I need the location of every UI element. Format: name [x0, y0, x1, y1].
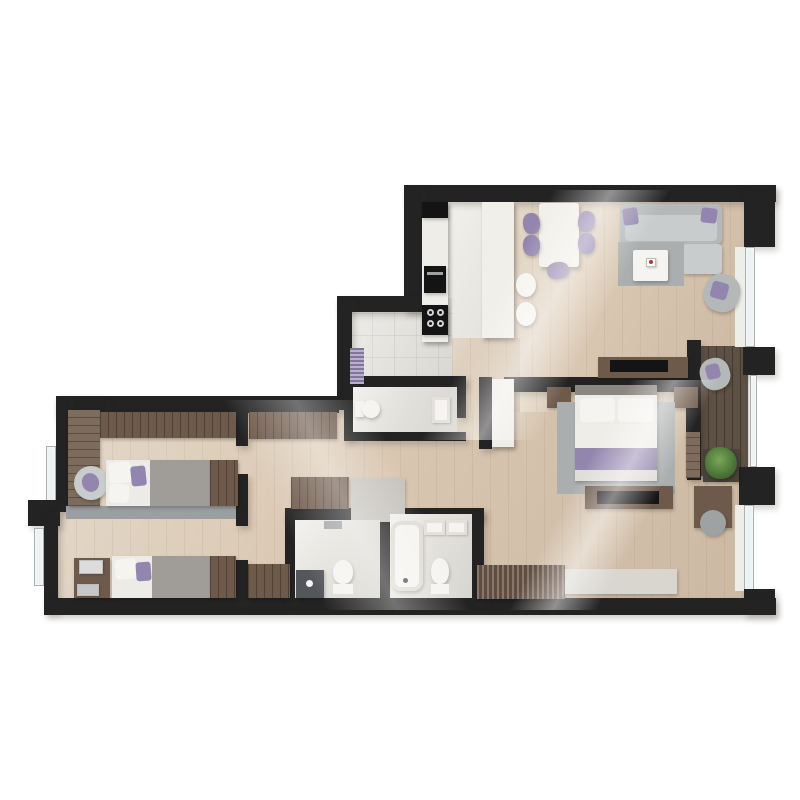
wall-bathrooms-middle: [380, 514, 390, 602]
wall-left-upper-block: [404, 185, 422, 312]
bed3-pillow-1: [108, 461, 131, 483]
master-nightstand-right: [674, 387, 698, 408]
master-tv: [597, 491, 659, 504]
coffee-table-deco-dot: [649, 260, 653, 264]
wall-corner-top-right: [744, 185, 775, 247]
master-duvet: [575, 424, 657, 448]
master-wardrobe: [686, 432, 700, 478]
wall-top: [404, 185, 776, 202]
oven-handle: [427, 272, 443, 275]
main-bath-toilet-tank: [431, 584, 449, 594]
bedroom2-wardrobe-2: [248, 564, 290, 598]
bed3-cushion: [130, 465, 147, 486]
shower-drain: [306, 580, 313, 587]
sofa-chaise: [682, 244, 722, 274]
laptop-closed: [77, 584, 99, 596]
wall-right-step: [739, 467, 775, 505]
wall-guest-bath-bottom: [344, 432, 466, 441]
dining-table: [539, 203, 579, 267]
wall-bedroom2-left: [44, 512, 58, 612]
bed2-blanket: [152, 556, 210, 598]
dining-chair-2: [523, 235, 541, 257]
shower-bath-toilet-tank: [333, 584, 353, 594]
bed3-blanket: [150, 460, 210, 506]
master-bed-foot: [575, 470, 657, 481]
bed3-foot-wardrobe: [210, 460, 238, 506]
sofa-pillow-right: [700, 207, 717, 224]
bedroom3-window: [46, 446, 56, 502]
wall-right-mid: [743, 347, 775, 375]
master-pillow-left: [580, 397, 616, 422]
shower-head: [324, 521, 342, 529]
hall-wardrobe-2: [291, 477, 349, 509]
sink-2: [446, 520, 467, 535]
bar-stool-2: [516, 302, 536, 326]
main-bath-toilet-bowl: [431, 558, 449, 584]
floor-plan-image: [0, 0, 800, 800]
living-window-right: [745, 247, 755, 347]
bedroom2-window: [34, 528, 44, 586]
balcony-railing: [750, 375, 757, 467]
shower-bath-toilet-bowl: [333, 560, 353, 584]
cooktop: [422, 305, 448, 335]
wall-guest-bath-left: [344, 376, 353, 440]
living-tv: [610, 360, 668, 372]
guest-toilet-bowl: [362, 400, 380, 418]
wall-master-left: [479, 377, 492, 449]
master-desk-chair: [700, 510, 726, 536]
master-bench-marble: [565, 569, 677, 594]
radiator: [350, 348, 364, 384]
burner-2: [437, 309, 444, 316]
plant: [705, 447, 737, 479]
laptop-open: [79, 560, 103, 574]
sink-1: [424, 520, 445, 535]
master-pillow-right: [618, 397, 654, 422]
burner-3: [427, 320, 434, 327]
bedroom3-wardrobe-top: [100, 412, 236, 438]
bed2-pillow: [114, 558, 138, 580]
kitchen-island: [482, 202, 514, 338]
bed3-pillow-2: [109, 483, 130, 503]
burner-1: [427, 309, 434, 316]
bathtub-faucet: [403, 578, 408, 583]
master-bench-wood: [477, 565, 565, 599]
master-window-right: [744, 505, 754, 591]
wall-bottom: [44, 598, 776, 615]
oven: [424, 266, 446, 293]
guest-sink: [432, 397, 450, 423]
window-sill-master: [735, 505, 744, 591]
sofa-pillow-left: [622, 207, 639, 226]
master-entry-cabinet: [492, 379, 514, 447]
bar-stool-1: [516, 273, 536, 297]
wall-bedroom-divider: [66, 506, 242, 519]
wall-bedroom3-stub-top: [236, 398, 248, 446]
bed2-cushion: [135, 561, 151, 581]
kitchen-tall-unit: [422, 202, 448, 218]
wall-bedroom2-stub: [234, 560, 248, 602]
wall-guest-bath-right: [457, 376, 466, 418]
burner-4: [437, 320, 444, 327]
master-throw: [575, 448, 657, 470]
bed2-foot-wardrobe: [210, 556, 236, 598]
hallway-wardrobe: [249, 412, 337, 439]
